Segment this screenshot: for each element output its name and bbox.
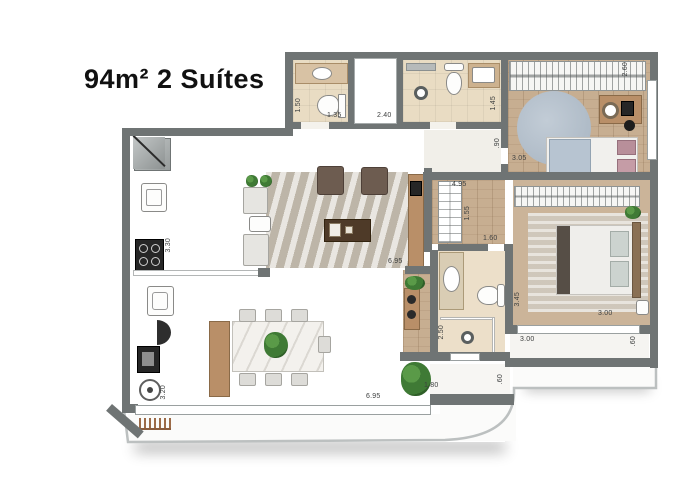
- dim-terrace1-depth: .60: [630, 336, 637, 346]
- wall-bath2-suite2: [501, 58, 508, 128]
- floor-plan-canvas: 94m² 2 Suítes: [0, 0, 700, 500]
- wall-hall-right-a: [501, 122, 508, 148]
- dim-living-length: 6.95: [388, 258, 402, 265]
- dim-suite1-length: 3.45: [514, 292, 521, 306]
- wall-tv: [424, 168, 432, 252]
- hall-plant: [405, 276, 425, 290]
- wall-suite1-bottom-a: [505, 325, 517, 334]
- wall-main-top: [122, 128, 293, 136]
- dim-bath2-height: 1.45: [490, 96, 497, 110]
- wall-shaft-bath2: [396, 58, 403, 128]
- sideboard: [209, 321, 230, 397]
- living-window: [135, 405, 431, 415]
- dim-closet-depth: 1.55: [464, 206, 471, 220]
- suite2-door: [501, 148, 508, 164]
- dining-chair: [239, 309, 256, 322]
- dining-chair: [265, 309, 282, 322]
- washing-machine-door: [142, 352, 154, 366]
- dim-terrace2-depth: .60: [497, 374, 504, 384]
- table-plant: [264, 332, 288, 358]
- ac-grill: [139, 418, 171, 430]
- bathroom3-door: [488, 244, 504, 251]
- shower-head: [414, 86, 428, 100]
- closet-shelving: [438, 181, 462, 243]
- stove-burner: [139, 244, 148, 253]
- lounge-chair: [243, 234, 269, 266]
- dim-closet-span: 4.95: [452, 181, 466, 188]
- dim-suite2-depth: 2.60: [622, 62, 629, 76]
- office-chair: [624, 120, 635, 131]
- laundry-tub-basin: [152, 292, 168, 310]
- bath3-toilet-tank: [497, 284, 505, 307]
- wall-suite1-bottom-b: [640, 325, 658, 334]
- potted-plant: [246, 175, 258, 187]
- wall-suite-divider: [423, 172, 658, 180]
- wall-balcony-step: [430, 394, 514, 405]
- dim-dining-length: 3.20: [160, 385, 167, 399]
- single-bed-blanket: [549, 139, 591, 176]
- desk-chair: [602, 102, 619, 119]
- plan-title: 94m² 2 Suítes: [84, 64, 265, 95]
- lounge-chair: [243, 187, 268, 214]
- dim-bath2-width: 2.40: [377, 112, 391, 119]
- dining-chair: [265, 373, 282, 386]
- bath3-sink: [443, 266, 460, 292]
- dining-chair: [291, 373, 308, 386]
- terrace-plant: [401, 362, 431, 396]
- water-heater-knob: [147, 387, 153, 393]
- armchair: [361, 167, 388, 195]
- bathroom1-door: [301, 122, 329, 129]
- dim-terrace1-width: 3.00: [520, 336, 534, 343]
- kitchen-counter: [133, 270, 265, 276]
- dining-chair: [291, 309, 308, 322]
- bath2-toilet-bowl: [446, 72, 462, 95]
- bathroom2-door: [430, 122, 456, 129]
- tv: [410, 181, 422, 196]
- bath2-shower-ledge: [406, 63, 436, 71]
- stove-burner: [151, 244, 160, 253]
- dim-bath1-width: 1.35: [327, 112, 341, 119]
- kitchen-sink-basin: [146, 189, 162, 206]
- bath3-toilet-bowl: [477, 286, 499, 305]
- suite1-window: [517, 325, 640, 334]
- wall-terrace1-bottom: [505, 358, 658, 367]
- stove-burner: [151, 257, 160, 266]
- pillow: [610, 231, 629, 257]
- suite1-wardrobe: [514, 186, 640, 207]
- dining-chair: [239, 373, 256, 386]
- dim-terrace2-width: 1.80: [424, 382, 438, 389]
- pillow: [610, 261, 629, 287]
- bath2-sink: [472, 67, 495, 83]
- wall-counter-stub: [258, 268, 270, 277]
- dim-balcony-length: 6.95: [366, 393, 380, 400]
- potted-plant: [260, 175, 272, 187]
- dining-chair: [318, 336, 331, 353]
- shower-glass: [440, 317, 494, 320]
- stool: [407, 295, 416, 304]
- wall-hall-top-stub: [405, 266, 432, 274]
- side-table: [249, 216, 271, 232]
- wall-top: [285, 52, 658, 60]
- shower-head: [461, 331, 474, 344]
- dim-bath1-height: 1.50: [295, 98, 302, 112]
- dim-bath3-length: 2.50: [438, 325, 445, 339]
- wall-left: [122, 128, 130, 412]
- laptop: [621, 101, 634, 116]
- stove: [135, 239, 164, 272]
- pillow: [617, 140, 636, 155]
- dim-suite1-width: 3.00: [598, 310, 612, 317]
- dim-kitchen-length: 3.30: [165, 238, 172, 252]
- bath2-toilet-tank: [444, 63, 464, 71]
- stove-burner: [139, 257, 148, 266]
- bath1-sink: [312, 67, 332, 80]
- dim-bath3-width: 1.60: [483, 235, 497, 242]
- bed-headboard: [632, 222, 641, 298]
- suite1-plant: [625, 206, 641, 219]
- armchair: [317, 166, 344, 195]
- dim-suite2-width: 3.05: [512, 155, 526, 162]
- dim-hall-width: .90: [494, 138, 501, 148]
- wall-bath3-suite1: [505, 244, 513, 330]
- stool: [407, 310, 416, 319]
- shower-glass: [492, 317, 495, 355]
- bed-foot-runner: [557, 226, 570, 294]
- coffee-table-tray: [345, 226, 353, 234]
- coffee-table-tray: [329, 223, 341, 237]
- wall-bathblock-left: [285, 52, 293, 136]
- bathroom3-window: [450, 353, 480, 361]
- nightstand: [636, 300, 649, 315]
- suite2-window: [647, 80, 657, 160]
